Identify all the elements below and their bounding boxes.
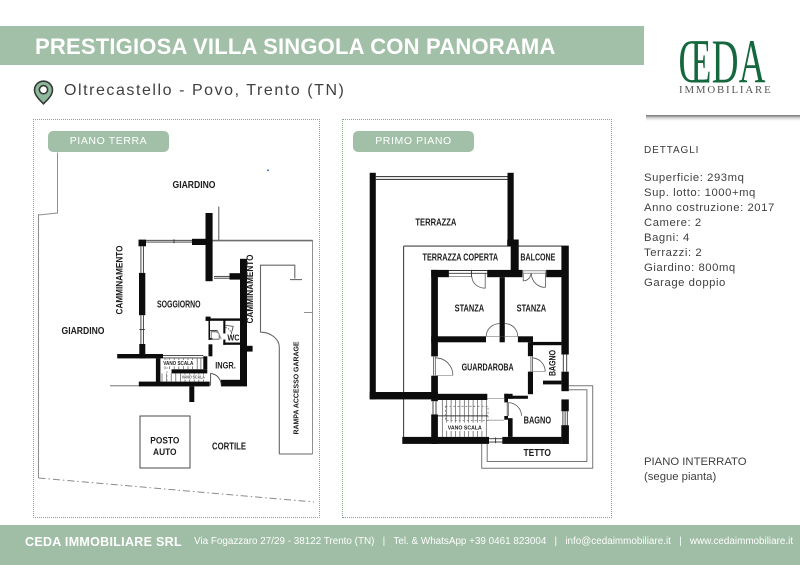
svg-text:STANZA: STANZA	[455, 303, 485, 314]
svg-text:BAGNO: BAGNO	[548, 350, 558, 376]
svg-text:RAMPA ACCESSO GARAGE: RAMPA ACCESSO GARAGE	[291, 342, 300, 435]
svg-text:VANO SCALA: VANO SCALA	[163, 361, 193, 367]
svg-text:GIARDINO: GIARDINO	[173, 180, 216, 191]
svg-text:TERRAZZA COPERTA: TERRAZZA COPERTA	[423, 253, 499, 264]
svg-text:TETTO: TETTO	[523, 447, 551, 459]
svg-text:SOGGIORNO: SOGGIORNO	[157, 300, 201, 311]
svg-text:VANO SCALA: VANO SCALA	[448, 426, 482, 432]
svg-text:VANO SCALA: VANO SCALA	[182, 375, 205, 380]
svg-text:TERRAZZA: TERRAZZA	[415, 218, 456, 229]
svg-text:WC: WC	[227, 333, 239, 342]
svg-text:INGR.: INGR.	[215, 360, 236, 371]
svg-text:CAMMINAMENTO: CAMMINAMENTO	[245, 254, 255, 323]
svg-text:CAMMINAMENTO: CAMMINAMENTO	[115, 245, 125, 314]
svg-text:BALCONE: BALCONE	[520, 252, 555, 263]
svg-text:STANZA: STANZA	[517, 303, 547, 314]
svg-text:POSTO: POSTO	[150, 436, 179, 447]
svg-text:AUTO: AUTO	[153, 447, 177, 458]
svg-text:BAGNO: BAGNO	[524, 414, 552, 426]
svg-text:GUARDAROBA: GUARDAROBA	[462, 363, 514, 374]
svg-text:GIARDINO: GIARDINO	[62, 326, 105, 337]
svg-text:CORTILE: CORTILE	[212, 442, 246, 453]
